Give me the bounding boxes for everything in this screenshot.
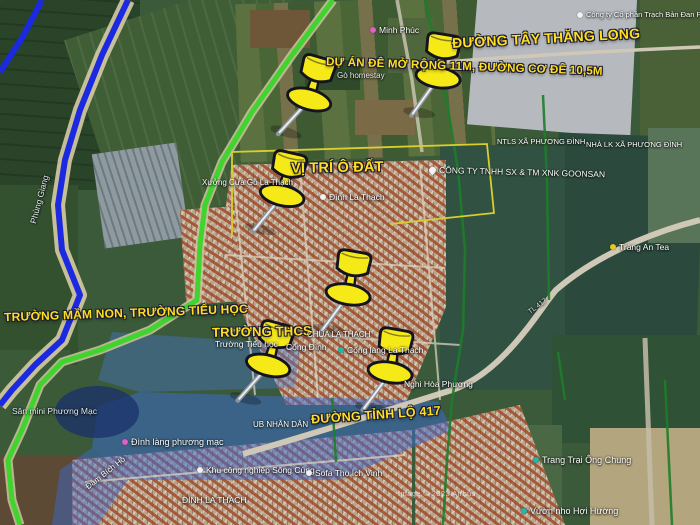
poi-pin-icon [521,508,527,514]
poi-text: Cổng Đình [286,342,327,352]
poi-cong-dinh: Cổng Đình [286,342,327,352]
poi-text: Trường Tiểu học [215,339,278,349]
poi-dinh-lang-phuong-mac[interactable]: Đình làng phương mạc [122,437,223,447]
poi-text: Nghi Hòa Phương [404,379,473,389]
poi-pin-icon [370,27,376,33]
poi-text: CHÙA LA THẠCH [307,330,370,339]
poi-text: UB NHÂN DÂN [253,420,308,429]
road-tay-thang-long [447,47,700,62]
poi-pin-icon [320,194,326,200]
poi-xuong-cua: Xưởng Cưa Gỗ La Thạch [202,178,293,187]
poi-pin-icon [428,165,438,175]
poi-text: Xưởng Cưa Gỗ La Thạch [202,178,293,187]
poi-ub-nhan-dan: UB NHÂN DÂN [253,420,308,429]
poi-dinh-la-thach-caps: ĐÌNH LA THẠCH [182,495,247,505]
poi-dinh-la-thach[interactable]: Đình La Thạch [320,192,385,202]
poi-text: NTLS XÃ PHƯƠNG ĐÌNH [497,137,585,146]
poi-text: Khu công nghiệp Sông Cùng [206,465,315,475]
poi-nghi-hoa-phuong: Nghi Hòa Phương [404,379,473,389]
poi-text: Tràng An Tea [619,242,669,252]
poi-pin-icon [197,467,203,473]
poi-nha-lk-xa-phuong-dinh: NHÀ LK XÃ PHƯƠNG ĐÌNH [586,140,682,149]
poi-pin-icon [577,12,583,18]
annotation-truong-thcs: TRƯỜNG THCS [212,323,312,340]
poi-text: NHÀ LK XÃ PHƯƠNG ĐÌNH [586,140,682,149]
poi-text: Công ty Cổ phần Trạch Bản Đan Ph [586,10,700,19]
poi-pin-icon [533,457,539,463]
poi-trang-an-tea[interactable]: Tràng An Tea [610,242,669,252]
poi-sofa-tho-ich-vinh[interactable]: Sofa Thọ Ích Vinh [306,468,382,478]
poi-text: Minh Phúc [379,25,419,35]
poi-pin-icon [610,244,616,250]
poi-text: Đình La Thạch [329,192,385,202]
poi-cong-ty-co-phan[interactable]: Công ty Cổ phần Trạch Bản Đan Ph [577,10,700,19]
map-canvas[interactable]: ĐƯỜNG TÂY THĂNG LONG DỰ ÁN ĐÊ MỞ RỘNG 11… [0,0,700,525]
poi-ntls-xa-phuong-dinh: NTLS XÃ PHƯƠNG ĐÌNH [497,137,585,146]
poi-pin-icon [306,470,312,476]
poi-cong-lang-la-thach[interactable]: Cống làng La Thạch [338,345,423,355]
annotation-vi-tri-o-dat: VỊ TRÍ Ô ĐẤT [291,159,384,177]
road-east [645,338,652,525]
poi-pin-icon [338,347,344,353]
poi-trang-trai-ong-chung[interactable]: Trang Trại Ông Chung [533,455,631,465]
poi-text: Cống làng La Thạch [347,345,423,355]
imagery-credit: Image © 2023 Airbus [398,489,476,498]
poi-text: Vườn nho Hợi Hường [530,506,618,516]
route-line-blue-corner [0,0,42,72]
poi-text: Gò homestay [337,71,385,80]
poi-minh-phuc[interactable]: Minh Phúc [370,25,419,35]
poi-san-mini-phuong-mac: Sân mini Phương Mạc [12,406,97,416]
poi-text: Sofa Thọ Ích Vinh [315,468,382,478]
poi-text: Trang Trại Ông Chung [542,455,631,465]
poi-khu-cong-nghiep-song-cung[interactable]: Khu công nghiệp Sông Cùng [197,465,315,475]
poi-text: Đình làng phương mạc [131,437,223,447]
poi-pin-icon [122,439,128,445]
poi-text: ĐÌNH LA THẠCH [182,495,247,505]
poi-text: Sân mini Phương Mạc [12,406,97,416]
poi-chua-la-thach: CHÙA LA THẠCH [307,330,370,339]
poi-truong-tieu-hoc: Trường Tiểu học [215,339,278,349]
poi-homestay: Gò homestay [337,71,385,80]
poi-vuon-nho-hoi-huong[interactable]: Vườn nho Hợi Hường [521,506,618,516]
